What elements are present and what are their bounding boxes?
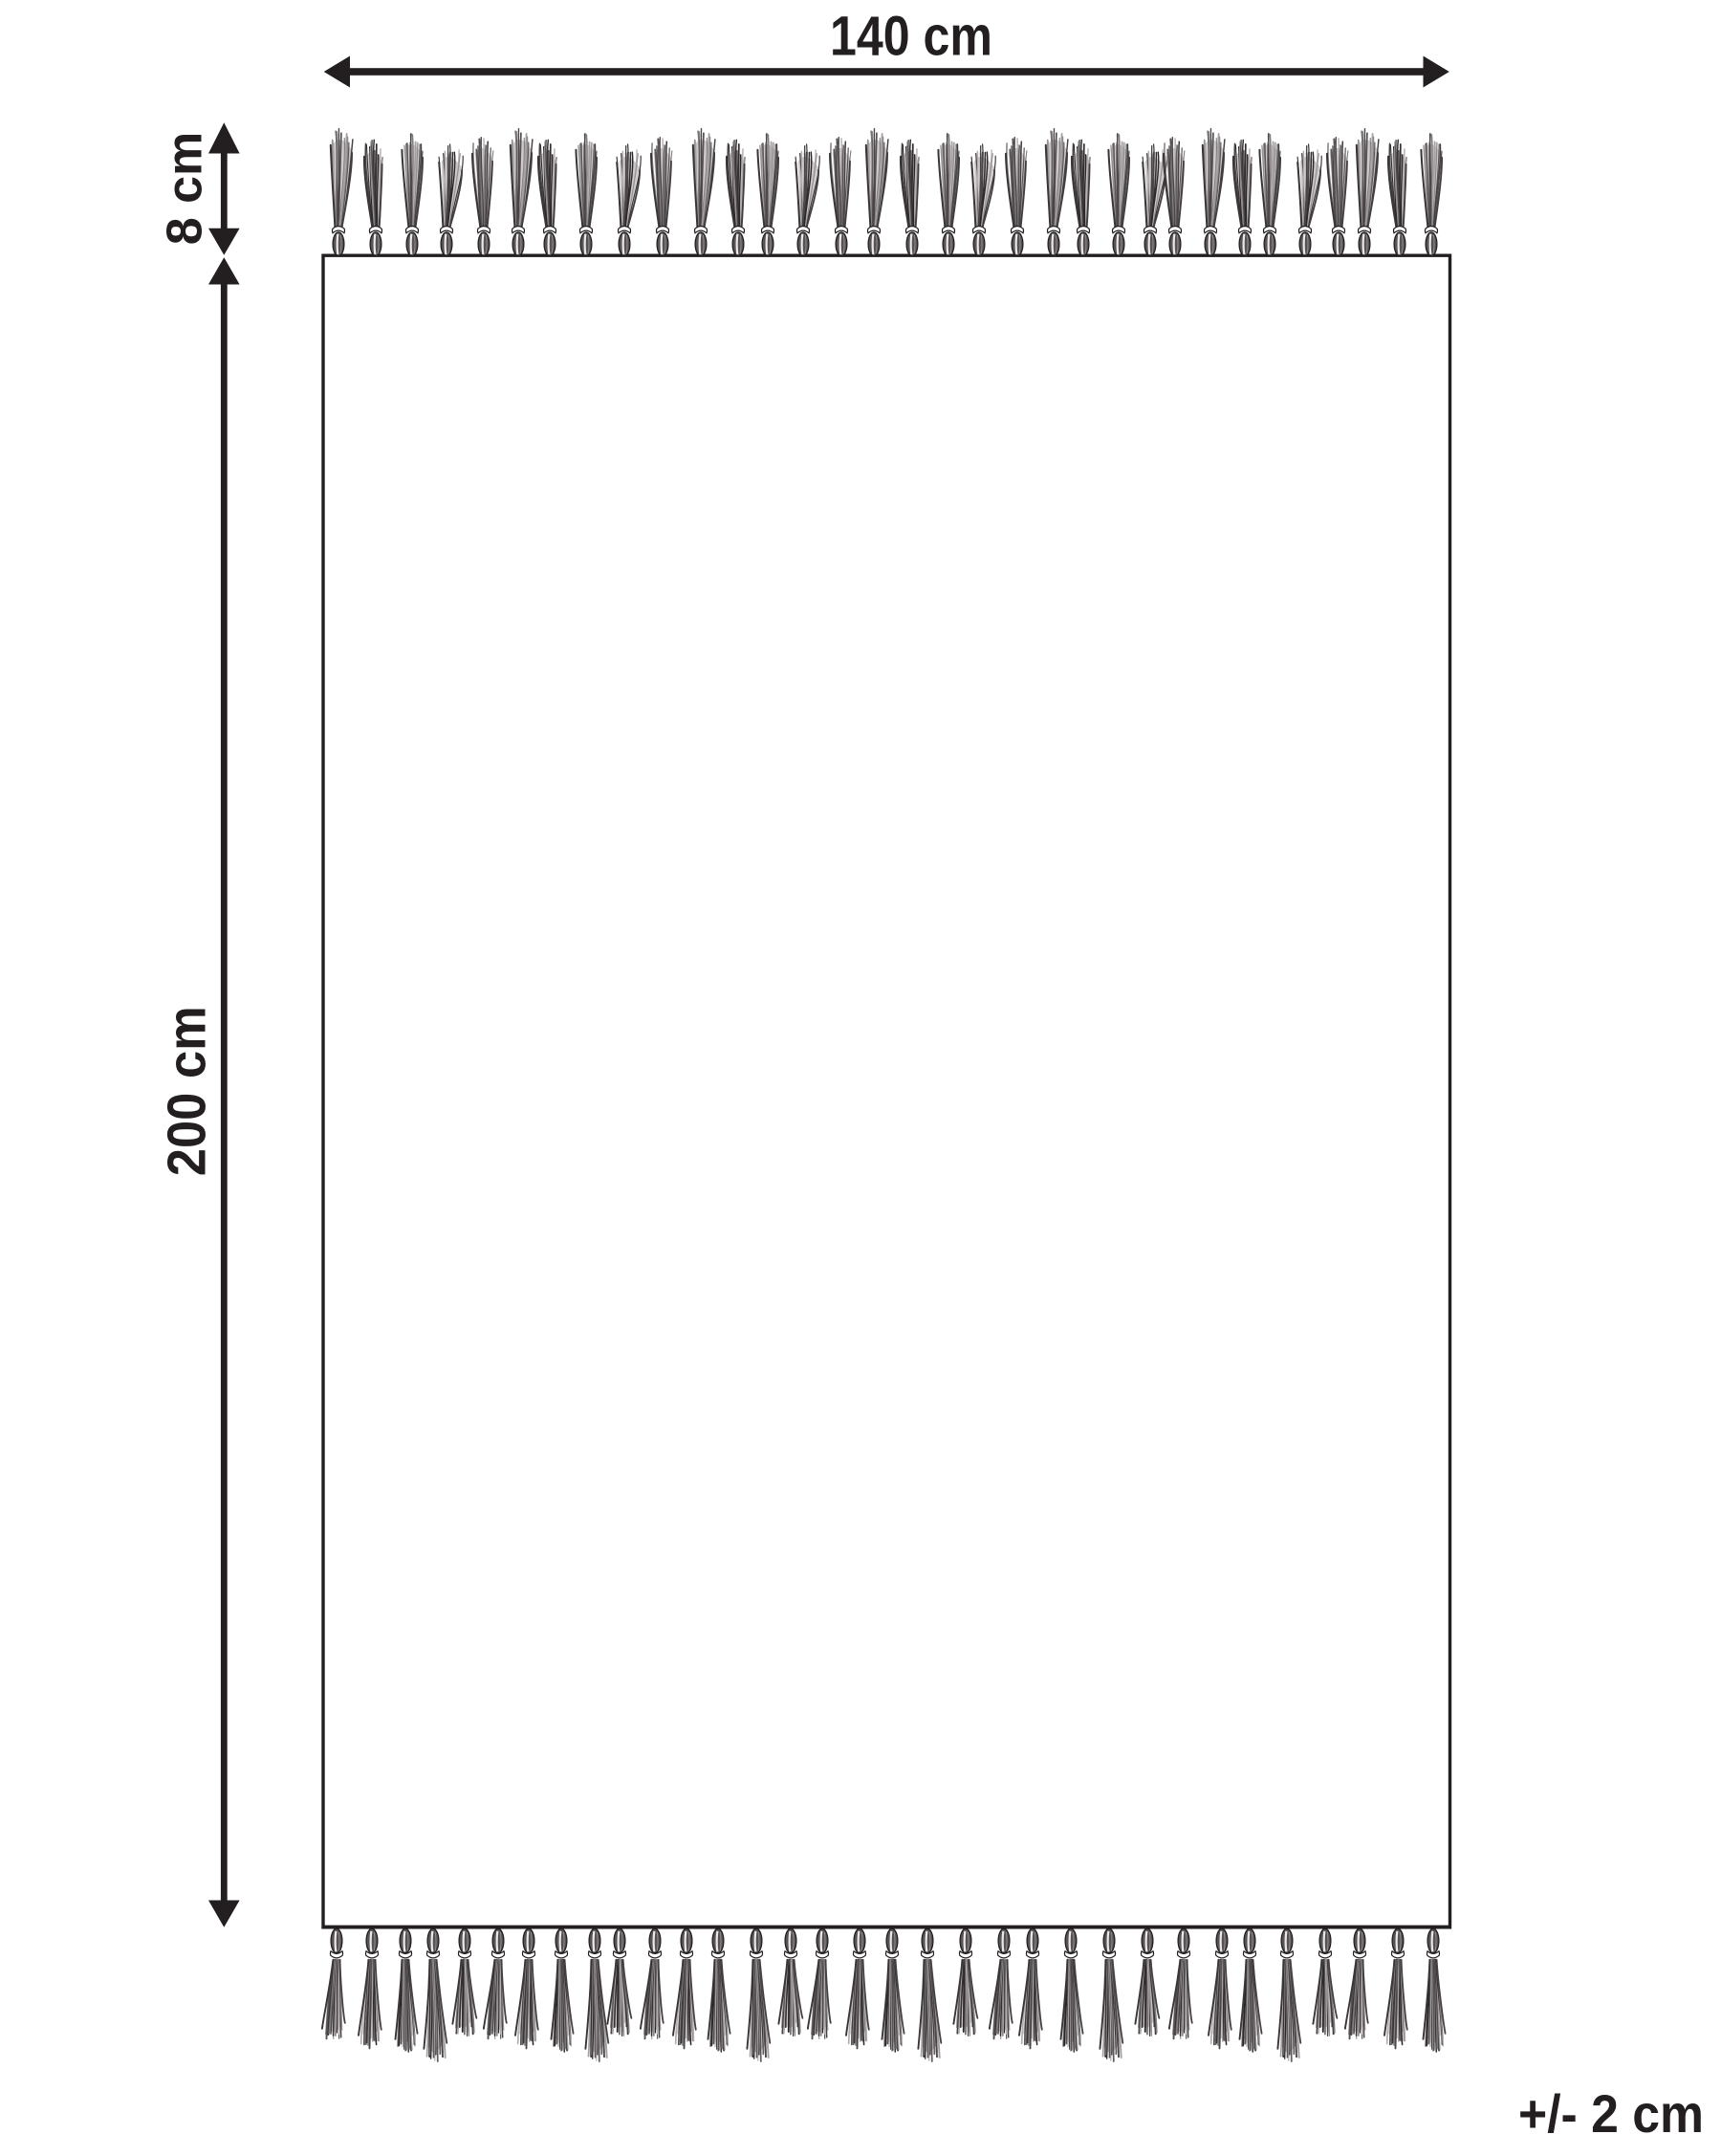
svg-text:140 cm: 140 cm: [830, 6, 992, 68]
svg-text:200 cm: 200 cm: [157, 1006, 218, 1176]
svg-text:8 cm: 8 cm: [157, 132, 212, 246]
svg-text:+/- 2 cm: +/- 2 cm: [1518, 2083, 1704, 2144]
